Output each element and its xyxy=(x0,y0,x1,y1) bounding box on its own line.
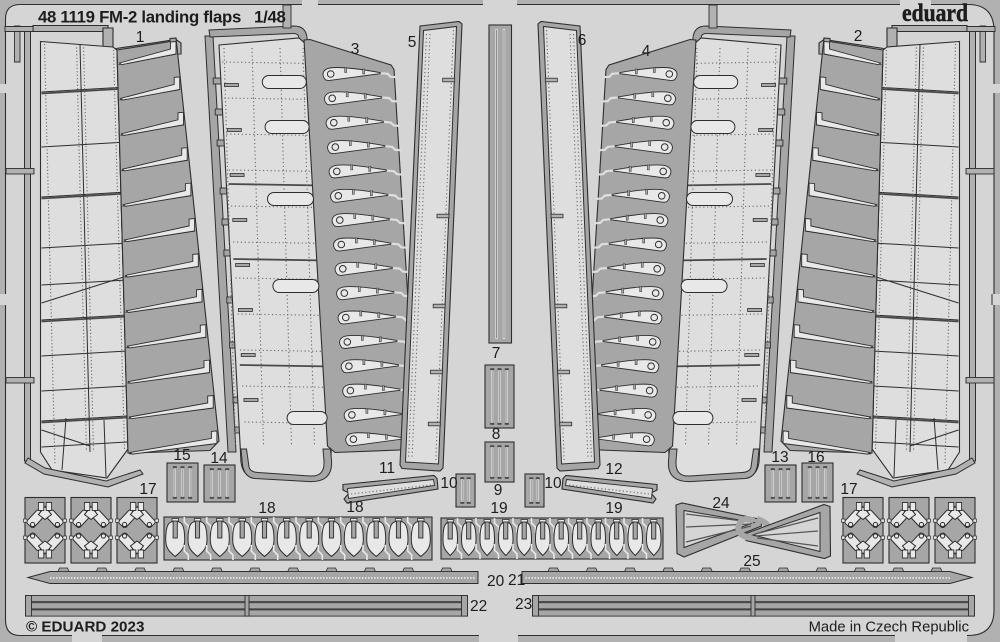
svg-text:22: 22 xyxy=(470,598,487,615)
svg-text:16: 16 xyxy=(807,449,824,466)
svg-text:19: 19 xyxy=(605,500,622,517)
svg-text:Made in Czech Republic: Made in Czech Republic xyxy=(809,620,970,636)
svg-text:19: 19 xyxy=(490,500,507,517)
svg-text:23: 23 xyxy=(515,596,532,613)
svg-text:17: 17 xyxy=(840,481,857,498)
svg-text:13: 13 xyxy=(771,449,788,466)
svg-text:11: 11 xyxy=(379,460,395,477)
svg-text:7: 7 xyxy=(492,345,501,362)
svg-text:4: 4 xyxy=(642,43,651,60)
svg-text:1: 1 xyxy=(136,29,145,46)
svg-text:21: 21 xyxy=(508,572,525,589)
svg-text:48 1119 FM-2 landing flaps 1: 48 1119 FM-2 landing flaps 1/48 xyxy=(38,8,286,27)
svg-text:20: 20 xyxy=(487,573,505,590)
svg-text:12: 12 xyxy=(605,461,622,478)
svg-text:25: 25 xyxy=(743,553,760,570)
svg-text:2: 2 xyxy=(854,28,863,45)
svg-text:18: 18 xyxy=(346,499,363,516)
svg-text:24: 24 xyxy=(712,495,730,512)
svg-text:15: 15 xyxy=(173,447,190,464)
svg-text:10: 10 xyxy=(440,475,458,492)
svg-text:8: 8 xyxy=(492,426,501,443)
svg-text:© EDUARD 2023: © EDUARD 2023 xyxy=(26,619,144,636)
svg-text:9: 9 xyxy=(494,482,503,499)
svg-text:5: 5 xyxy=(408,34,417,51)
svg-text:6: 6 xyxy=(578,32,587,49)
svg-text:17: 17 xyxy=(139,481,156,498)
svg-text:3: 3 xyxy=(351,41,360,58)
svg-text:14: 14 xyxy=(210,450,228,467)
svg-text:18: 18 xyxy=(258,500,275,517)
svg-text:10: 10 xyxy=(544,475,562,492)
svg-text:eduard: eduard xyxy=(902,0,968,27)
